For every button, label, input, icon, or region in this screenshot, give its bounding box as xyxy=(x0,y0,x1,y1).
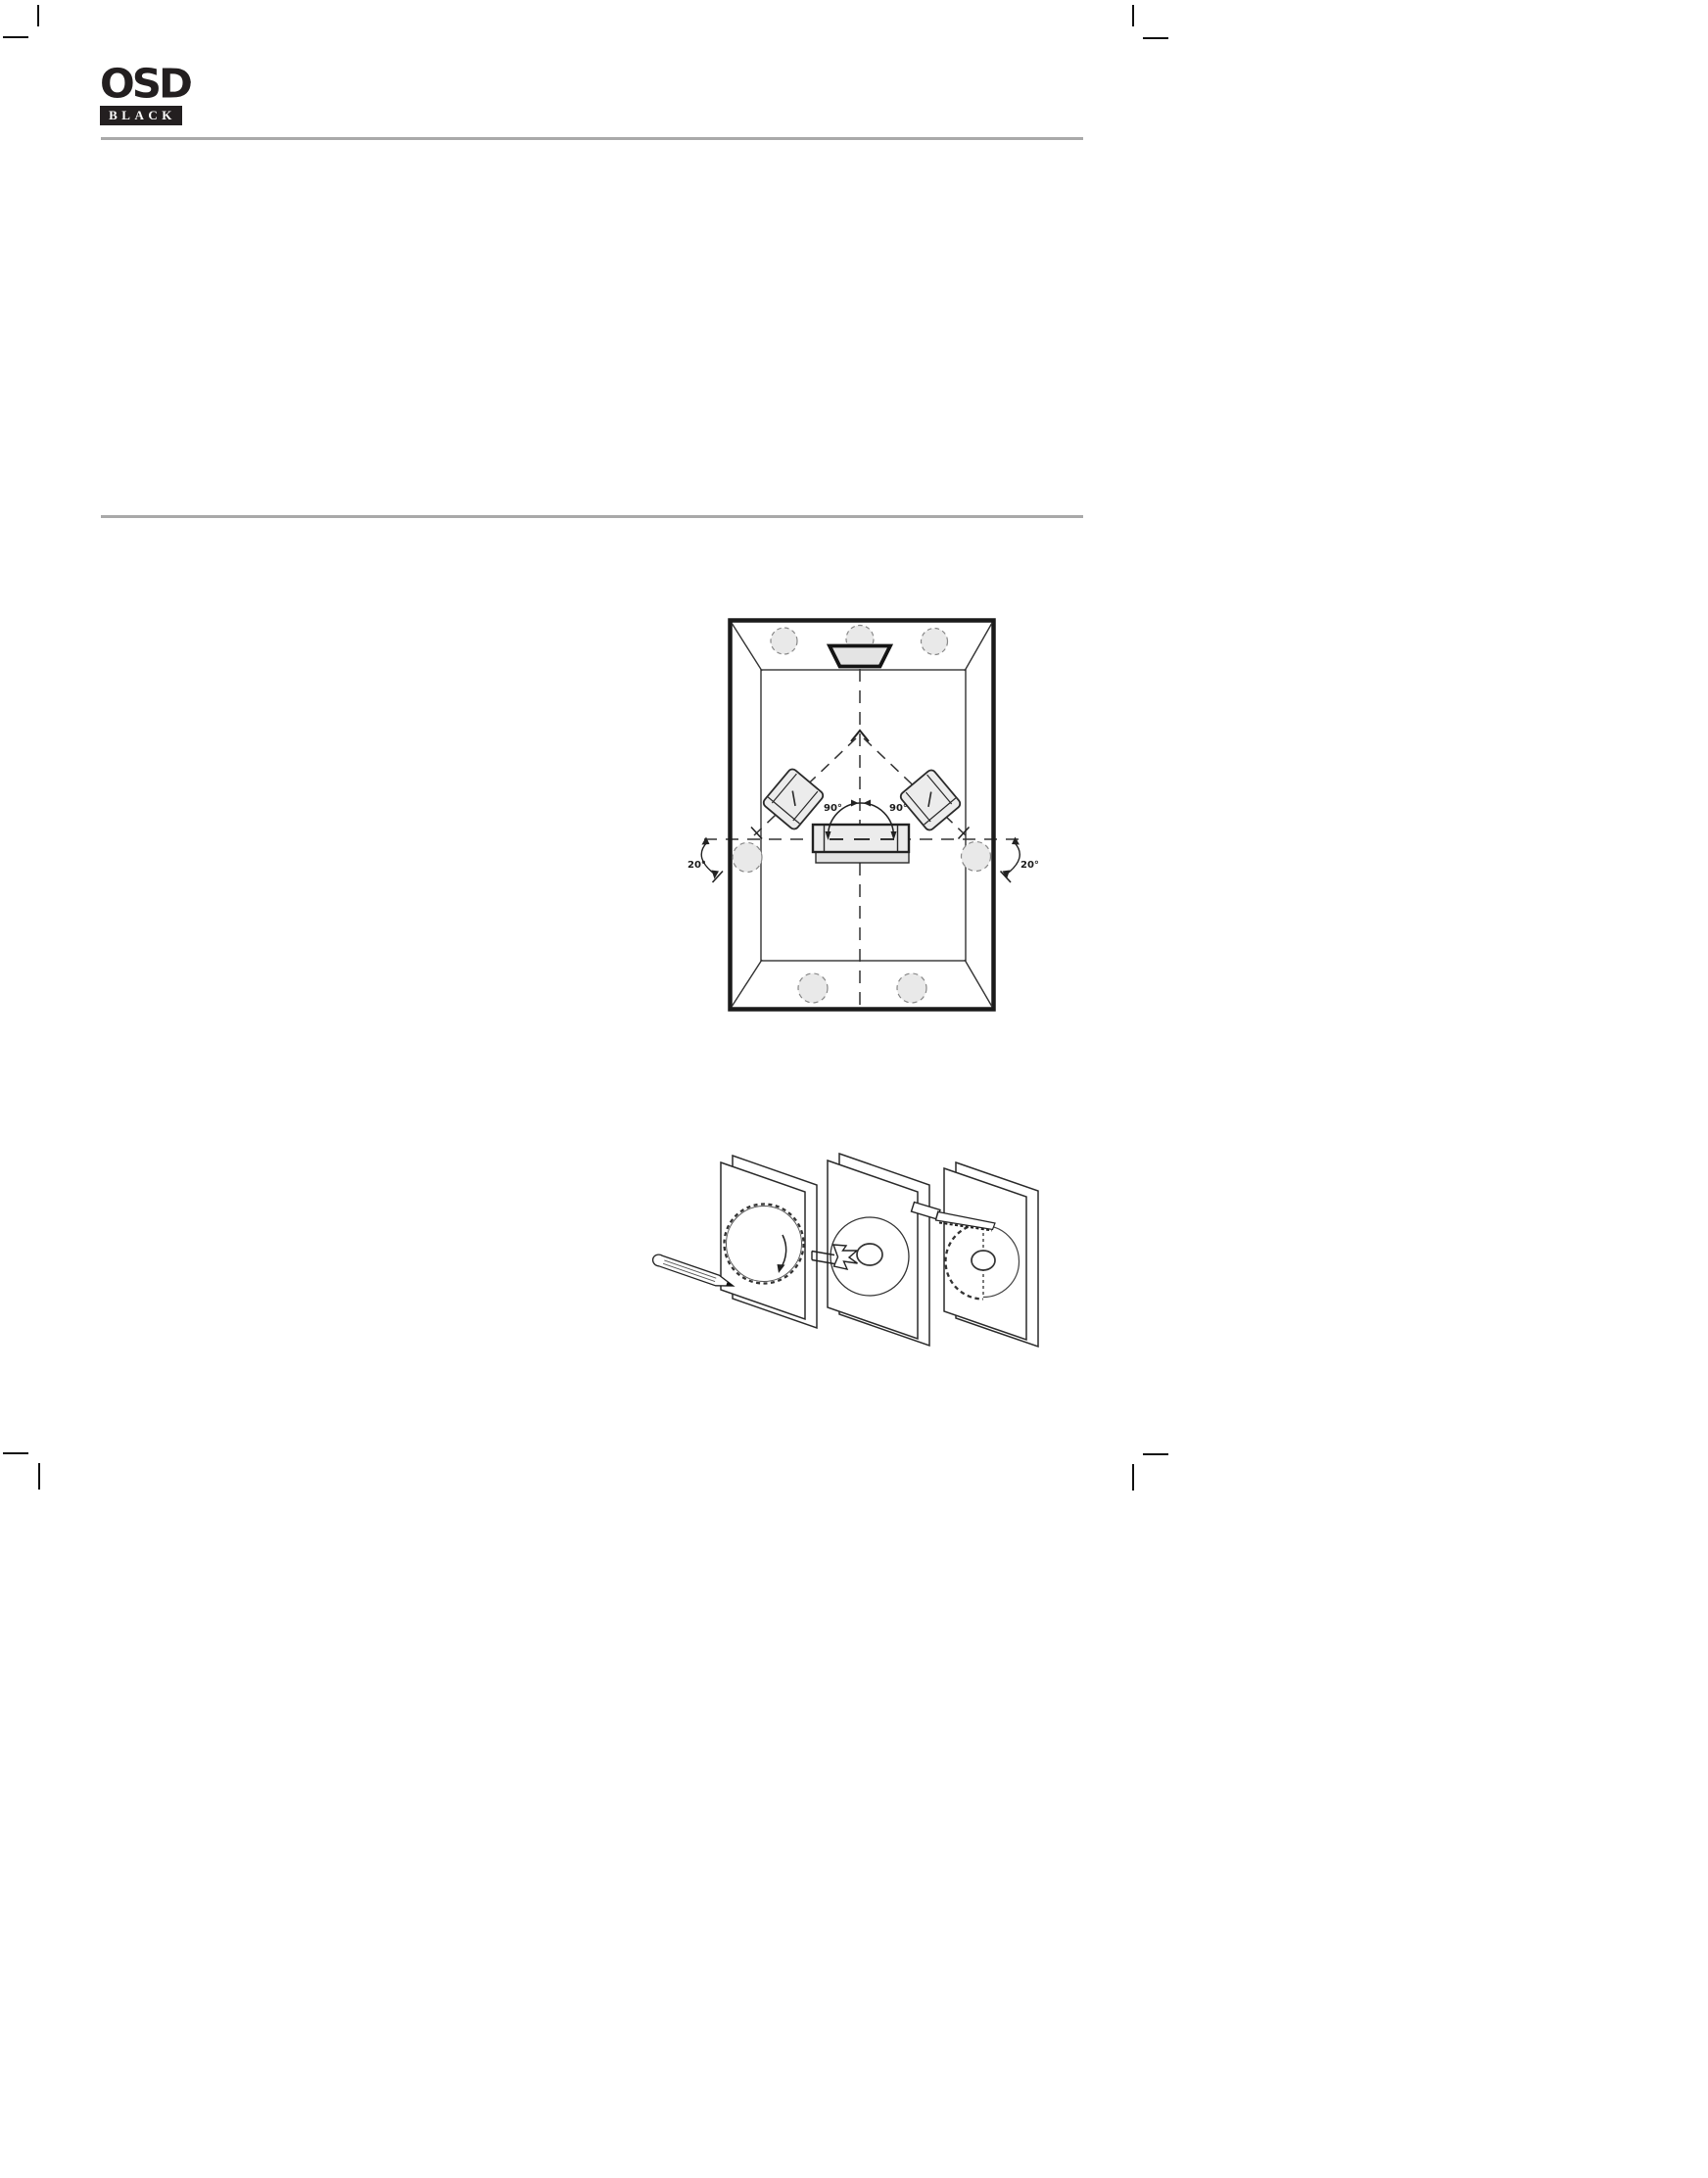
speaker-icon xyxy=(897,973,926,1003)
step-saw-panel xyxy=(912,1162,1039,1347)
crop-mark-top-right-h xyxy=(1143,37,1168,39)
speaker-icon xyxy=(733,843,762,873)
section-divider-top xyxy=(101,137,1083,140)
angle-label-20-right: 20° xyxy=(1020,860,1039,871)
hole-cutting-steps-diagram xyxy=(641,1144,1053,1354)
tv-icon xyxy=(830,646,890,667)
speaker-icon xyxy=(962,842,991,872)
angle-label-20-left: 20° xyxy=(688,860,706,871)
crop-mark-top-left-v xyxy=(37,5,39,26)
brand-series-badge: BLACK xyxy=(100,106,182,125)
speaker-icon xyxy=(798,973,828,1003)
speaker-icon xyxy=(771,628,797,654)
brand-logo: OSD® BLACK xyxy=(100,65,184,125)
pilot-hole xyxy=(857,1244,882,1265)
crop-mark-bottom-right-h xyxy=(1143,1453,1168,1455)
manual-page: OSD® BLACK xyxy=(0,0,1708,2178)
couch xyxy=(813,825,909,863)
angle-label-90-right: 90° xyxy=(889,803,908,814)
speaker-icon xyxy=(922,629,948,655)
angle-label-90-left: 90° xyxy=(824,803,842,814)
speaker-placement-diagram: 90° 90° 20° 20° xyxy=(646,605,1058,1017)
section-divider-middle xyxy=(101,515,1083,518)
crop-mark-bottom-right-v xyxy=(1132,1464,1134,1491)
pilot-hole xyxy=(972,1251,995,1270)
brand-name: OSD xyxy=(100,61,190,108)
brand-logo-text: OSD® xyxy=(100,65,184,103)
room-walls xyxy=(731,621,994,1010)
crop-mark-bottom-left-v xyxy=(38,1463,40,1490)
crop-mark-bottom-left-h xyxy=(3,1452,28,1454)
crop-mark-top-left-h xyxy=(3,36,28,38)
step-drill-panel xyxy=(812,1154,929,1346)
registered-trademark-icon: ® xyxy=(183,64,192,102)
rear-surround-speakers xyxy=(798,973,926,1003)
step-trace-panel xyxy=(721,1156,817,1328)
crop-mark-top-right-v xyxy=(1132,5,1134,26)
